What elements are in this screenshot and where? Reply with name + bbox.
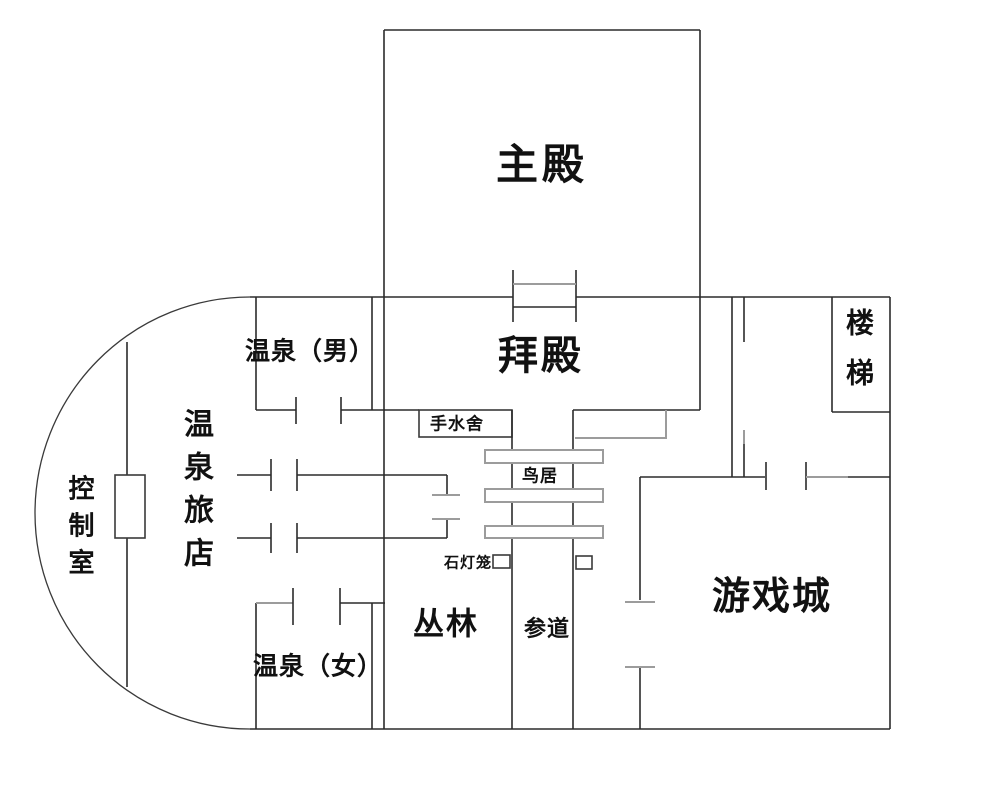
control-room-walls [115, 342, 145, 687]
stairs-label: 楼梯 [844, 308, 872, 408]
stone-lantern-label: 石灯笼 [444, 556, 492, 571]
torii-label: 鸟居 [522, 468, 558, 485]
hot-spring-men-label: 温泉（男） [245, 340, 375, 365]
hot-spring-women-label: 温泉（女） [253, 655, 383, 680]
control-room-label: 控制室 [67, 475, 93, 586]
outer-boundary [35, 297, 890, 729]
floorplan-canvas: 主殿 拜殿 温泉（男） 温泉（女） 温泉旅店 控制室 楼梯 手水舍 鸟居 石灯笼… [0, 0, 1000, 800]
torii-bars [485, 450, 603, 538]
stone-lantern-markers [493, 555, 592, 569]
worship-hall-label: 拜殿 [498, 336, 584, 376]
east-corridor-walls [732, 297, 744, 477]
jungle-label: 丛林 [413, 609, 479, 640]
approach-path-label: 参道 [524, 618, 570, 640]
temizuya-label: 手水舍 [430, 416, 484, 433]
game-city-label: 游戏城 [712, 578, 832, 616]
main-hall-label: 主殿 [496, 144, 588, 186]
gate-connector [513, 270, 576, 322]
hot-spring-inn-label: 温泉旅店 [180, 408, 210, 580]
inn-middle-rooms-walls [237, 459, 460, 553]
control-console-box [115, 475, 145, 538]
